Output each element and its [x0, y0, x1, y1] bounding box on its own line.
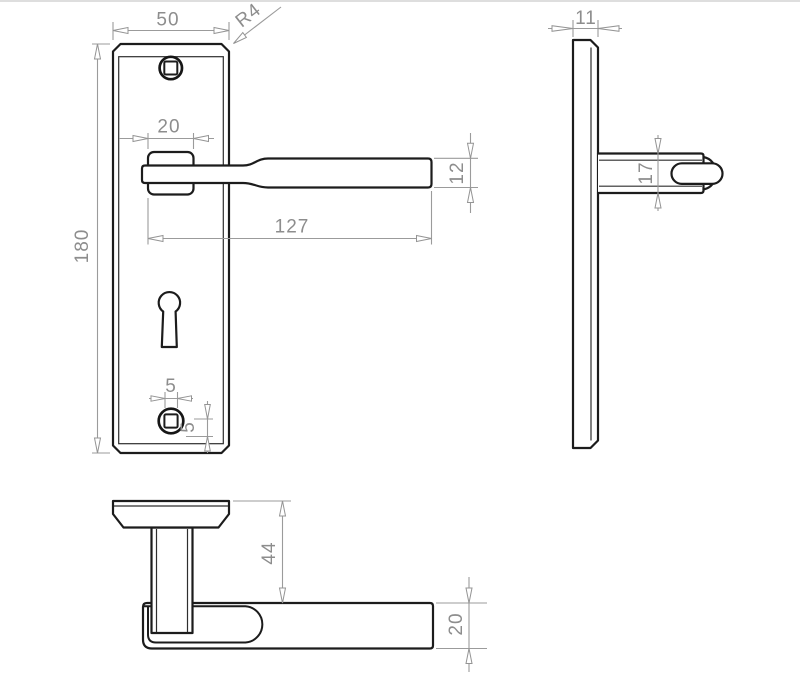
dim-plate-thickness: 11 [575, 8, 597, 29]
dim-plate-height-group: 180 [72, 44, 110, 453]
dim-grip-depth: 20 [446, 612, 467, 635]
bottom-plate-outline [113, 501, 229, 528]
dim-hole-width: 5 [165, 376, 177, 397]
dim-plate-width: 50 [156, 10, 179, 31]
dim-plate-height: 180 [72, 229, 93, 264]
dim-lever-height: 12 [447, 161, 468, 184]
side-plate-outline [573, 40, 598, 448]
front-view [113, 44, 432, 453]
front-keyhole [159, 292, 180, 347]
dim-plate-width-group: 50 [113, 10, 229, 41]
dim-handle-projection-group: 44 [233, 501, 291, 603]
dim-plate-thickness-group: 11 [548, 8, 622, 37]
drawing-page: 50 R4 180 [0, 0, 800, 676]
technical-drawing-canvas: 50 R4 180 [0, 0, 800, 676]
dim-grip-depth-group: 20 [436, 577, 487, 672]
dim-corner-radius-group: R4 [232, 0, 281, 44]
dim-corner-radius: R4 [232, 0, 266, 32]
bottom-neck [152, 528, 193, 634]
side-view [573, 40, 723, 448]
dim-hole-offset: 5 [178, 421, 199, 433]
dim-handle-projection: 44 [259, 541, 280, 564]
dim-lever-length: 127 [275, 217, 310, 238]
side-lever-thumb-cap [672, 163, 723, 184]
bottom-view [113, 501, 433, 649]
dim-lever-height-group: 12 [434, 133, 478, 213]
dim-lever-thickness: 17 [636, 161, 657, 184]
dim-boss-width: 20 [157, 117, 180, 138]
